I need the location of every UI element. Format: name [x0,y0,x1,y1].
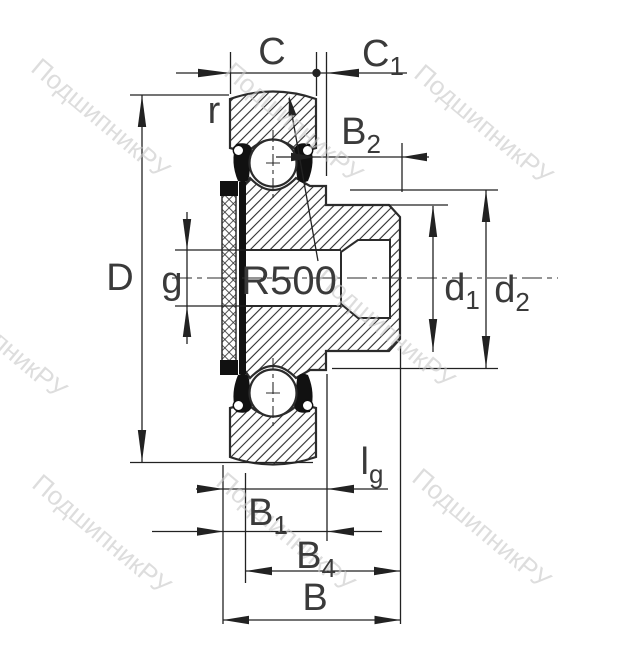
dim-d2 [482,190,490,368]
dim-lg [196,485,388,493]
dim-C [176,69,321,77]
label-C1: C1 [362,35,404,73]
label-d2: d2 [494,271,530,309]
label-d1: d1 [444,269,480,307]
label-C: C [258,33,285,71]
label-B4: B4 [296,537,336,575]
dim-D [138,95,146,462]
label-B1: B1 [248,494,288,532]
hex-socket [341,240,390,318]
label-D: D [106,259,133,297]
label-R500: R500 [241,261,337,301]
label-g: g [161,262,182,300]
label-lg: lg [361,443,384,481]
label-r: r [208,92,221,130]
label-B2: B2 [341,113,381,151]
bearing-drawing-page: ПодшипникРУ ПодшипникРУ ПодшипникРУ Подш… [0,0,620,660]
label-B: B [302,579,327,617]
